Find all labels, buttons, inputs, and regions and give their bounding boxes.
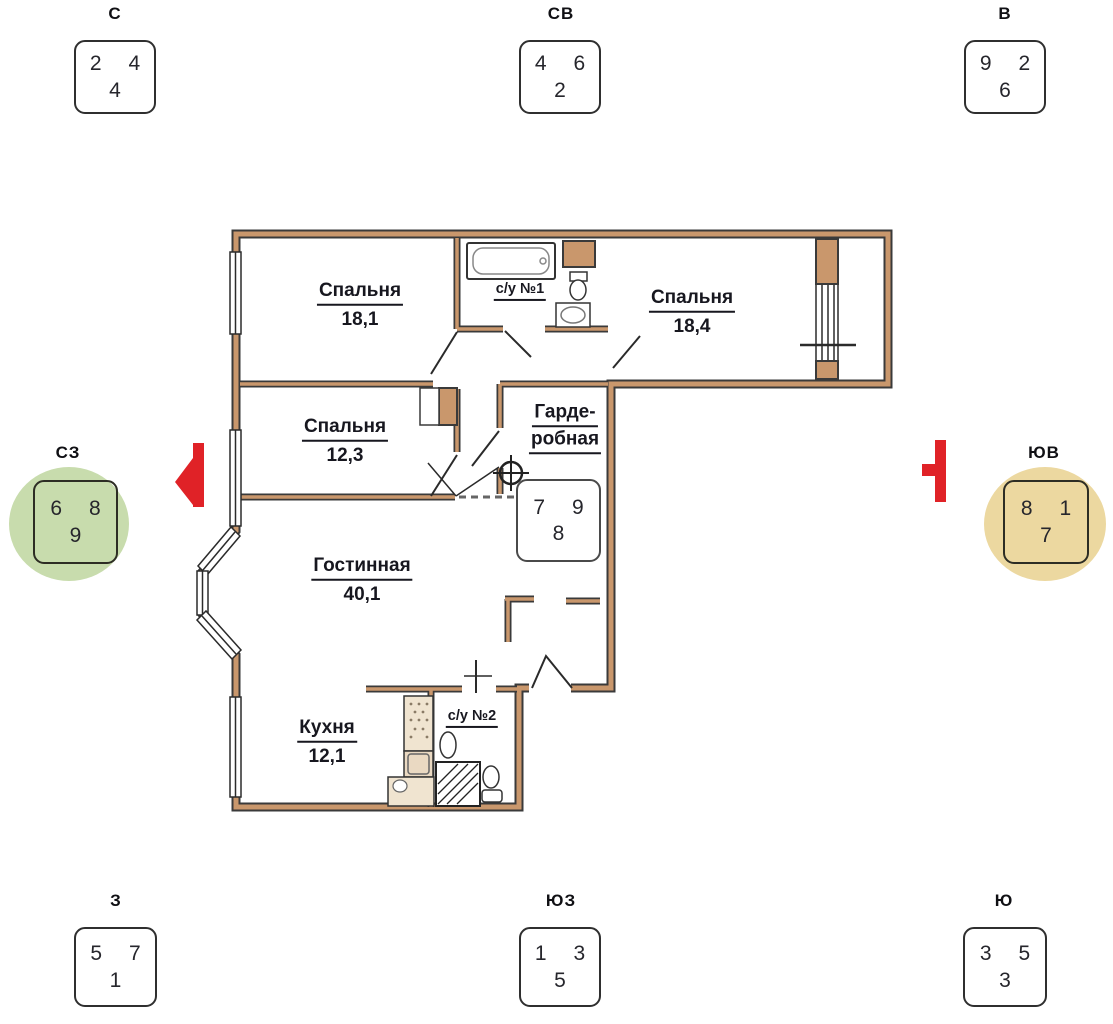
digit: 8 (553, 522, 565, 545)
room-area: 18,1 (317, 308, 403, 332)
room-name: Кухня (297, 716, 357, 743)
room-label-wardrobe: Гарде- робная (529, 400, 601, 454)
room-name: Гарде- (532, 400, 597, 427)
digit: 4 (535, 52, 547, 75)
digit: 6 (999, 79, 1011, 102)
room-name: Спальня (302, 415, 388, 442)
toilet-icon-1 (570, 272, 587, 300)
digit: 3 (574, 942, 586, 965)
digit: 6 (50, 497, 62, 520)
plan-number-box[interactable]: 7 9 8 (516, 479, 601, 562)
digit: 2 (1019, 52, 1031, 75)
room-label-living: Гостинная 40,1 (311, 554, 412, 607)
room-area: 18,4 (649, 315, 735, 339)
digit: 7 (533, 496, 545, 519)
room-label-bedroom-top-right: Спальня 18,4 (649, 286, 735, 339)
room-name: с/у №2 (446, 707, 498, 728)
compass-label-west: З (110, 891, 122, 911)
room-area: 40,1 (311, 583, 412, 607)
shaft-block (420, 388, 439, 425)
compass-label-northwest: СЗ (56, 443, 81, 463)
compass-box-northeast[interactable]: 4 6 2 (519, 40, 601, 114)
room-name: Спальня (649, 286, 735, 313)
digit: 8 (1021, 497, 1033, 520)
digit: 2 (554, 79, 566, 102)
sink-icon-1 (556, 303, 590, 327)
compass-box-east[interactable]: 9 2 6 (964, 40, 1046, 114)
digit: 7 (1040, 524, 1052, 547)
room-label-bedroom-top-left: Спальня 18,1 (317, 279, 403, 332)
digit: 5 (90, 942, 102, 965)
room-name: робная (529, 427, 601, 454)
digit: 1 (1060, 497, 1072, 520)
digit: 8 (89, 497, 101, 520)
digit: 7 (129, 942, 141, 965)
compass-label-south: Ю (995, 891, 1014, 911)
compass-label-southwest: ЮЗ (546, 891, 576, 911)
compass-box-southeast[interactable]: 8 1 7 (1003, 480, 1089, 564)
room-name: с/у №1 (494, 280, 546, 301)
compass-box-northwest[interactable]: 6 8 9 (33, 480, 118, 564)
digit: 5 (1019, 942, 1031, 965)
digit: 3 (980, 942, 992, 965)
digit: 1 (535, 942, 547, 965)
digit: 1 (110, 969, 122, 992)
digit: 2 (90, 52, 102, 75)
digit: 5 (554, 969, 566, 992)
room-name: Спальня (317, 279, 403, 306)
compass-box-south[interactable]: 3 5 3 (963, 927, 1047, 1007)
digit: 4 (109, 79, 121, 102)
apartment-orientation-diagram: Спальня 18,1 с/у №1 Спальня 18,4 Спальня… (0, 0, 1113, 1024)
shower-icon (436, 762, 480, 806)
compass-label-northeast: СВ (548, 4, 575, 24)
room-label-bathroom-2: с/у №2 (446, 706, 498, 728)
compass-label-north: С (108, 4, 121, 24)
room-name: Гостинная (311, 554, 412, 581)
bathtub-icon (467, 243, 555, 279)
room-area: 12,3 (302, 444, 388, 468)
digit: 9 (70, 524, 82, 547)
sink-icon-2 (440, 732, 456, 758)
digit: 4 (129, 52, 141, 75)
toilet-icon-2 (482, 766, 502, 802)
compass-label-east: В (998, 4, 1011, 24)
room-label-bathroom-1: с/у №1 (494, 279, 546, 301)
compass-box-north[interactable]: 2 4 4 (74, 40, 156, 114)
digit: 9 (980, 52, 992, 75)
room-label-kitchen: Кухня 12,1 (297, 716, 357, 769)
digit: 9 (572, 496, 584, 519)
digit: 6 (574, 52, 586, 75)
kitchen-counter (388, 696, 434, 806)
compass-label-southeast: ЮВ (1028, 443, 1060, 463)
compass-box-west[interactable]: 5 7 1 (74, 927, 157, 1007)
digit: 3 (999, 969, 1011, 992)
room-area: 12,1 (297, 745, 357, 769)
red-tee-right-icon (918, 438, 948, 506)
room-label-bedroom-mid: Спальня 12,3 (302, 415, 388, 468)
red-arrow-left-icon (172, 441, 206, 509)
compass-box-southwest[interactable]: 1 3 5 (519, 927, 601, 1007)
